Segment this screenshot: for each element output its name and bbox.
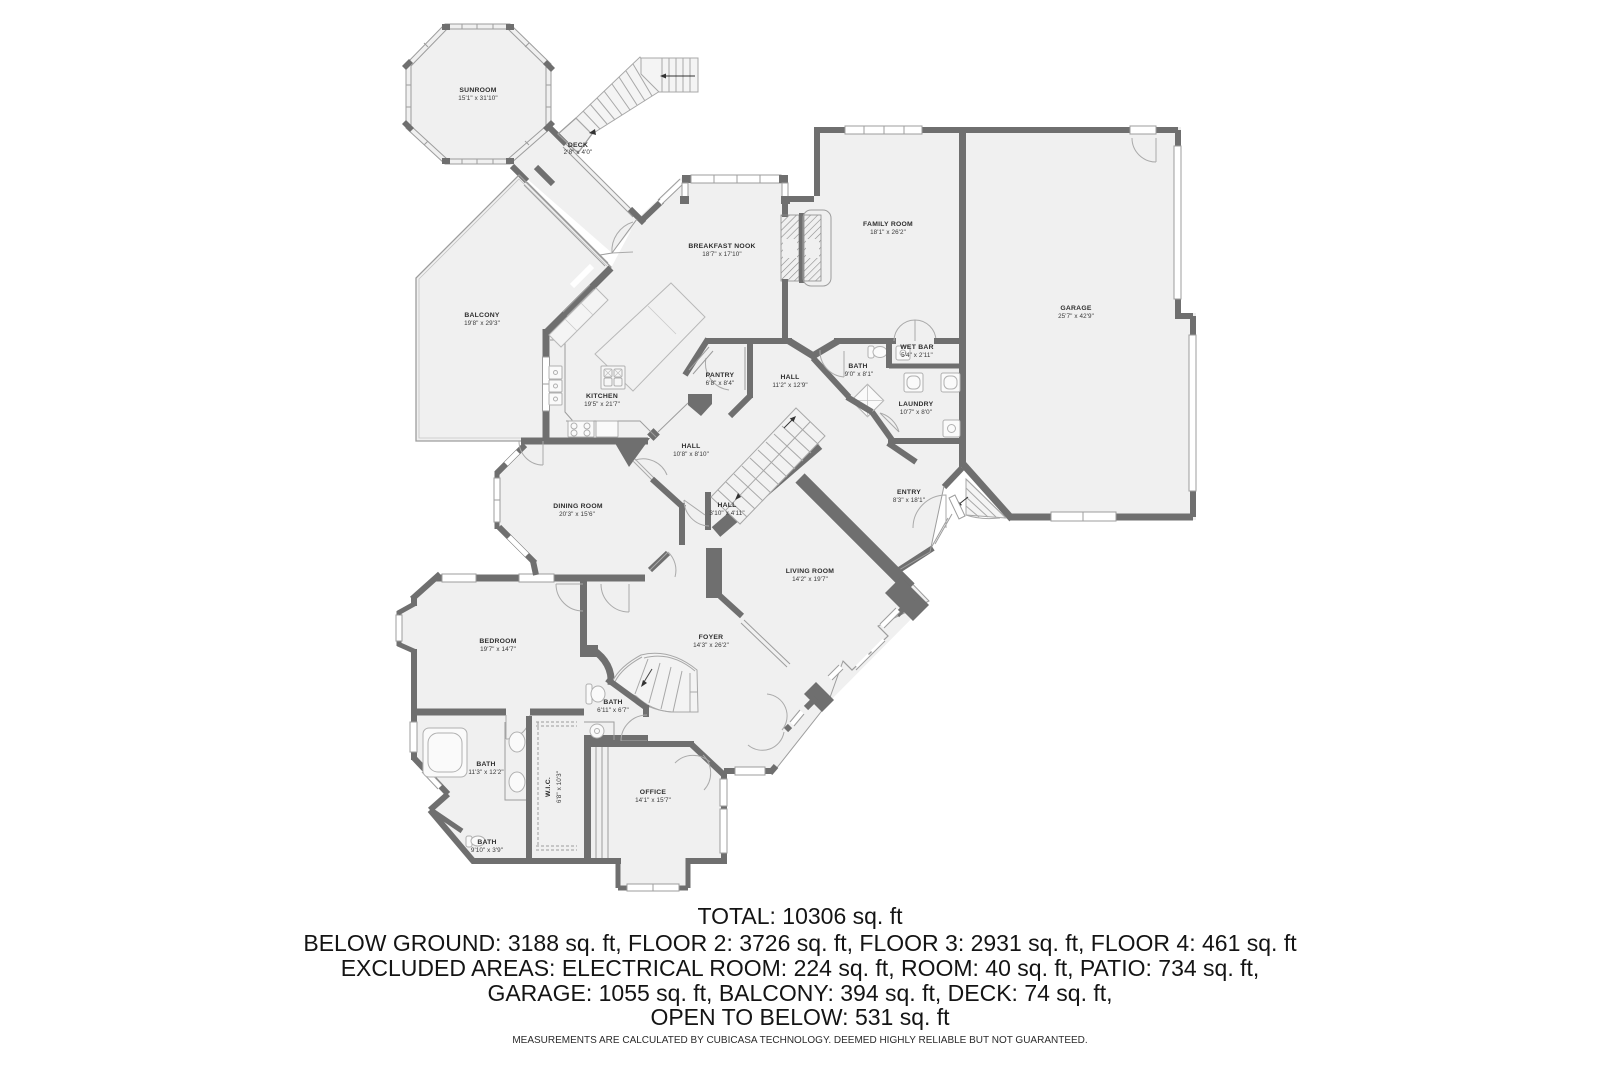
svg-text:2'8" x 4'0": 2'8" x 4'0" bbox=[564, 149, 593, 156]
svg-text:HALL: HALL bbox=[717, 502, 736, 509]
svg-text:8'3" x 18'1": 8'3" x 18'1" bbox=[893, 497, 925, 504]
svg-text:FOYER: FOYER bbox=[699, 634, 724, 641]
svg-text:19'7" x 14'7": 19'7" x 14'7" bbox=[480, 646, 516, 653]
svg-text:9'10" x 3'9": 9'10" x 3'9" bbox=[471, 847, 503, 854]
svg-text:OPEN TO BELOW: 531 sq. ft: OPEN TO BELOW: 531 sq. ft bbox=[650, 1004, 950, 1030]
svg-text:9'0" x 8'1": 9'0" x 8'1" bbox=[845, 371, 874, 378]
svg-text:LAUNDRY: LAUNDRY bbox=[899, 401, 934, 408]
svg-text:11'2" x 12'9": 11'2" x 12'9" bbox=[772, 382, 807, 389]
svg-text:15'1" x 31'10": 15'1" x 31'10" bbox=[458, 95, 497, 102]
svg-text:EXCLUDED AREAS: ELECTRICAL ROO: EXCLUDED AREAS: ELECTRICAL ROOM: 224 sq.… bbox=[341, 955, 1260, 981]
svg-text:FAMILY ROOM: FAMILY ROOM bbox=[863, 221, 913, 228]
svg-text:TOTAL: 10306 sq. ft: TOTAL: 10306 sq. ft bbox=[698, 903, 904, 929]
svg-text:10'8" x 8'10": 10'8" x 8'10" bbox=[673, 451, 709, 458]
svg-text:10'7" x 8'0": 10'7" x 8'0" bbox=[900, 409, 932, 416]
svg-text:BATH: BATH bbox=[476, 761, 495, 768]
svg-text:BELOW GROUND: 3188 sq. ft, FLO: BELOW GROUND: 3188 sq. ft, FLOOR 2: 3726… bbox=[303, 930, 1297, 956]
svg-text:W.I.C.: W.I.C. bbox=[545, 777, 552, 797]
svg-text:MEASUREMENTS ARE CALCULATED BY: MEASUREMENTS ARE CALCULATED BY CUBICASA … bbox=[512, 1035, 1087, 1046]
svg-text:18'1" x 26'2": 18'1" x 26'2" bbox=[870, 229, 906, 236]
svg-text:25'7" x 42'9": 25'7" x 42'9" bbox=[1058, 313, 1094, 320]
svg-text:BALCONY: BALCONY bbox=[464, 312, 500, 319]
svg-text:19'8" x 29'3": 19'8" x 29'3" bbox=[464, 320, 500, 327]
svg-text:SUNROOM: SUNROOM bbox=[459, 87, 496, 94]
svg-text:6'8" x 10'3": 6'8" x 10'3" bbox=[556, 771, 563, 803]
svg-text:20'3" x 15'6": 20'3" x 15'6" bbox=[559, 511, 595, 518]
svg-text:HALL: HALL bbox=[780, 374, 799, 381]
svg-text:14'2" x 19'7": 14'2" x 19'7" bbox=[792, 576, 828, 583]
svg-text:PANTRY: PANTRY bbox=[706, 372, 735, 379]
svg-text:BATH: BATH bbox=[603, 699, 622, 706]
svg-text:6'11" x 6'7": 6'11" x 6'7" bbox=[597, 707, 629, 714]
svg-text:HALL: HALL bbox=[681, 443, 700, 450]
svg-text:14'3" x 26'2": 14'3" x 26'2" bbox=[693, 642, 729, 649]
svg-text:18'7" x 17'10": 18'7" x 17'10" bbox=[702, 251, 741, 258]
svg-text:BEDROOM: BEDROOM bbox=[479, 638, 516, 645]
svg-text:KITCHEN: KITCHEN bbox=[586, 393, 618, 400]
svg-text:GARAGE: 1055 sq. ft, BALCONY:: GARAGE: 1055 sq. ft, BALCONY: 394 sq. ft… bbox=[487, 980, 1112, 1006]
svg-text:DECK: DECK bbox=[568, 142, 588, 149]
svg-text:6'8" x 8'4": 6'8" x 8'4" bbox=[706, 380, 735, 387]
svg-text:DINING ROOM: DINING ROOM bbox=[553, 503, 603, 510]
svg-text:BATH: BATH bbox=[477, 839, 496, 846]
svg-text:OFFICE: OFFICE bbox=[640, 789, 667, 796]
svg-text:5'4" x 2'11": 5'4" x 2'11" bbox=[901, 352, 933, 359]
svg-text:ENTRY: ENTRY bbox=[897, 489, 921, 496]
svg-text:19'5" x 21'7": 19'5" x 21'7" bbox=[584, 401, 620, 408]
svg-text:LIVING ROOM: LIVING ROOM bbox=[786, 568, 835, 575]
svg-text:11'3" x 12'2": 11'3" x 12'2" bbox=[468, 769, 503, 776]
svg-text:WET BAR: WET BAR bbox=[900, 344, 933, 351]
svg-text:14'1" x 15'7": 14'1" x 15'7" bbox=[635, 797, 671, 804]
svg-text:BREAKFAST NOOK: BREAKFAST NOOK bbox=[688, 243, 755, 250]
svg-text:BATH: BATH bbox=[848, 363, 867, 370]
svg-text:GARAGE: GARAGE bbox=[1060, 305, 1092, 312]
svg-text:3'10" x 4'11": 3'10" x 4'11" bbox=[709, 510, 744, 517]
